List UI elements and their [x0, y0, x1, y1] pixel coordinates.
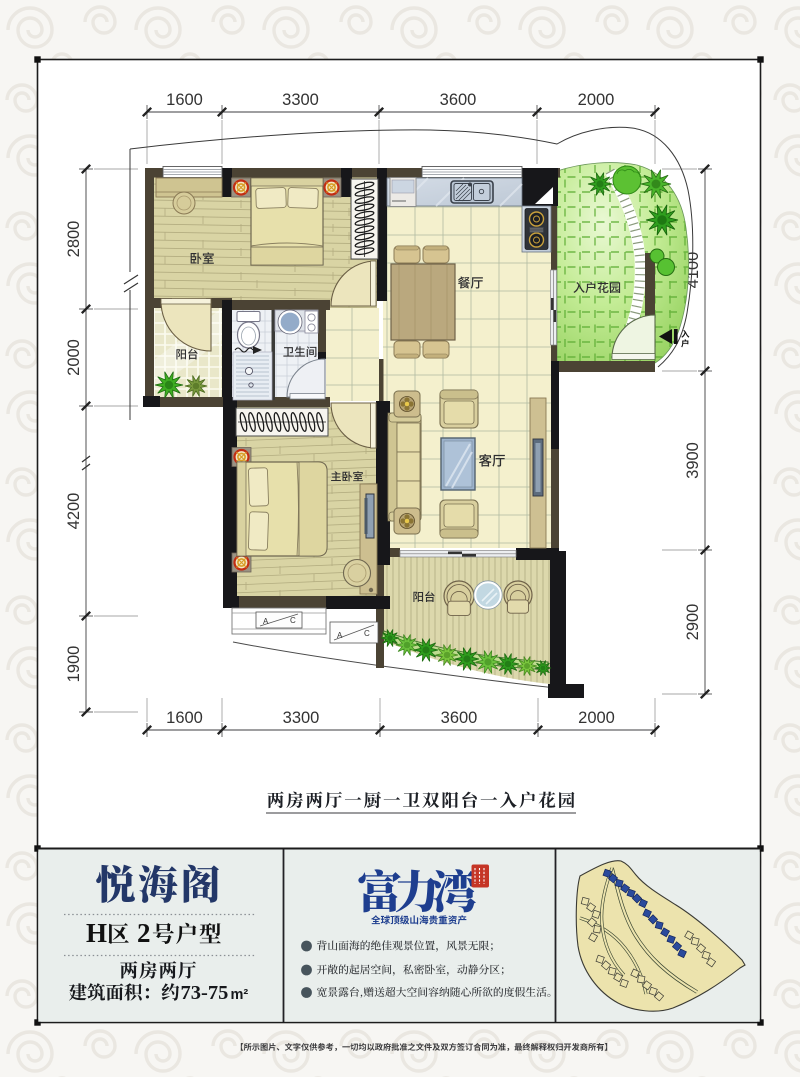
svg-text:3600: 3600: [441, 709, 478, 727]
svg-text:H: H: [86, 918, 107, 948]
svg-text:C: C: [290, 616, 296, 625]
svg-text:A: A: [337, 631, 343, 640]
svg-text:C: C: [364, 629, 370, 638]
svg-text:1900: 1900: [65, 646, 83, 683]
svg-text:3300: 3300: [283, 709, 320, 727]
svg-text:A: A: [263, 617, 269, 626]
svg-text:3600: 3600: [440, 91, 477, 109]
svg-text:2000: 2000: [65, 339, 83, 376]
svg-text:73-75: 73-75: [181, 982, 229, 1004]
svg-text:4200: 4200: [65, 493, 83, 530]
svg-text:1600: 1600: [166, 91, 203, 109]
svg-text:2000: 2000: [578, 91, 615, 109]
svg-text:3900: 3900: [684, 442, 702, 479]
svg-text:3300: 3300: [282, 91, 319, 109]
svg-text:2000: 2000: [578, 709, 615, 727]
svg-text:m²: m²: [231, 987, 249, 1003]
svg-text:1600: 1600: [166, 709, 203, 727]
svg-text:2900: 2900: [684, 604, 702, 641]
svg-text:2: 2: [137, 918, 151, 948]
svg-text:2800: 2800: [65, 221, 83, 258]
